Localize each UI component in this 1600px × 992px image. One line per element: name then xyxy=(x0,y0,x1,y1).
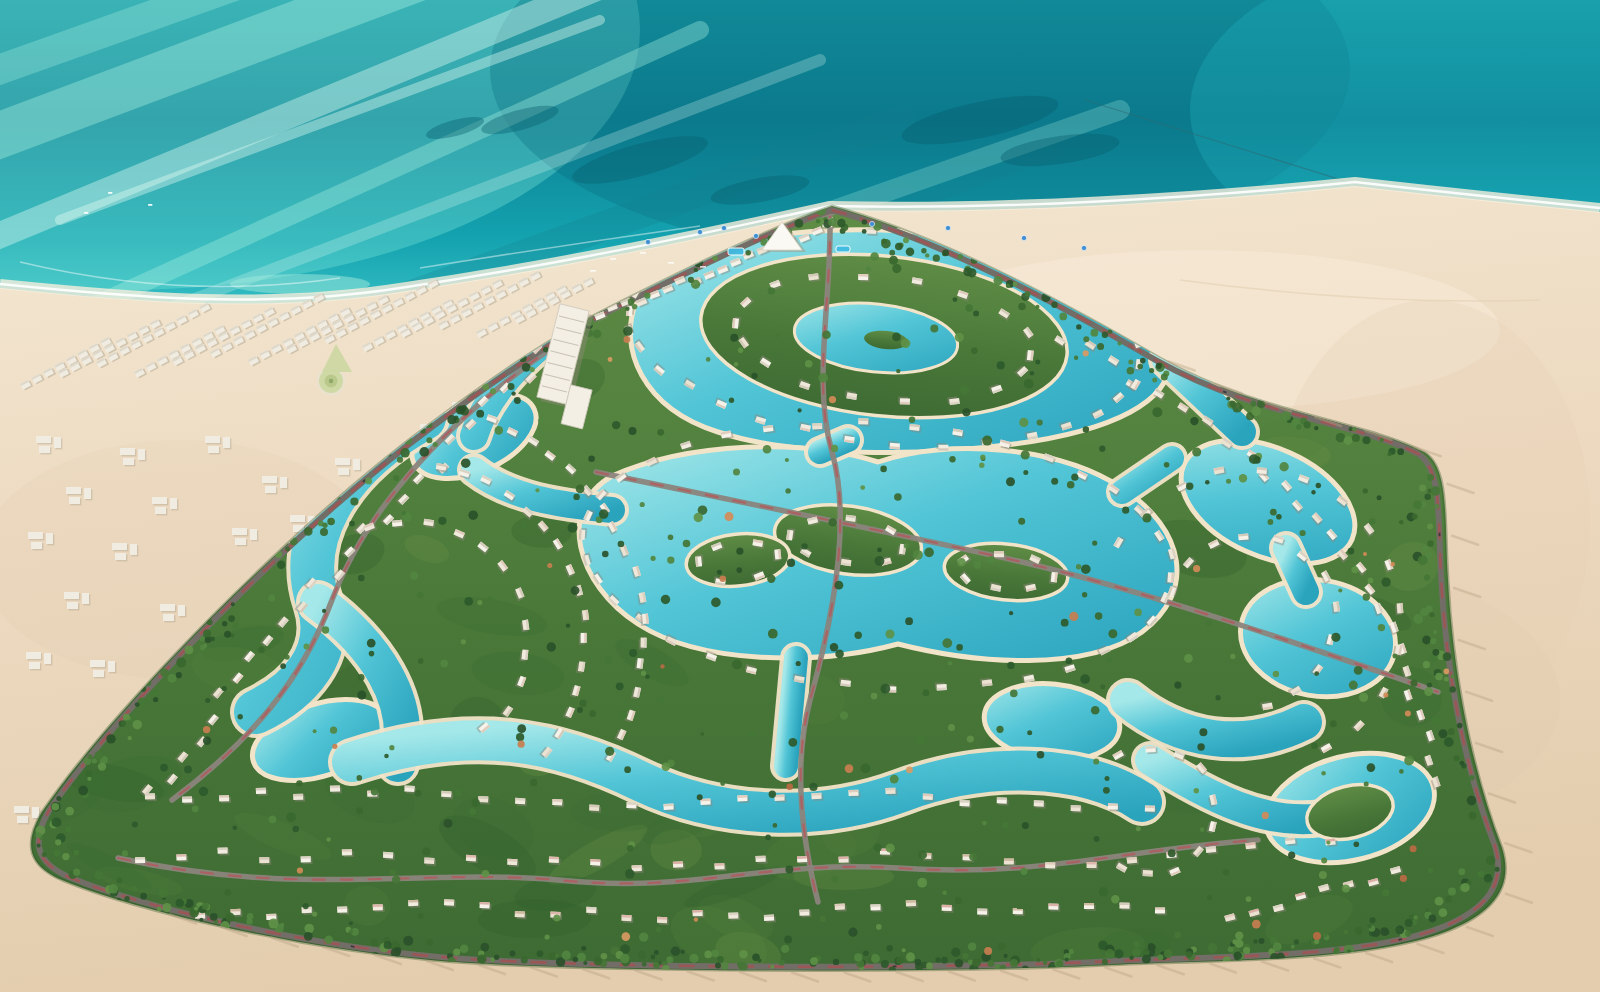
tree xyxy=(1197,743,1204,750)
accent-tree xyxy=(608,357,613,362)
villa xyxy=(579,528,588,540)
tree xyxy=(1097,343,1104,350)
tree xyxy=(54,849,61,856)
tree xyxy=(1004,954,1008,958)
tree xyxy=(1067,481,1075,489)
tree xyxy=(176,899,185,908)
tree xyxy=(1399,520,1404,525)
tree xyxy=(357,691,366,700)
tree xyxy=(840,711,848,719)
tree xyxy=(1314,426,1318,430)
tree xyxy=(285,547,290,552)
accent-tree xyxy=(332,744,337,749)
tree xyxy=(238,714,243,719)
tree xyxy=(1469,775,1474,780)
accent-tree xyxy=(786,783,793,790)
tree xyxy=(902,948,906,952)
tree xyxy=(231,602,235,606)
tree xyxy=(638,951,646,959)
tree xyxy=(95,751,104,760)
tree xyxy=(583,961,587,965)
tree xyxy=(1081,564,1091,574)
tree xyxy=(566,623,570,627)
tree xyxy=(892,333,901,342)
tree xyxy=(1226,396,1230,400)
tree xyxy=(1443,652,1452,661)
tree xyxy=(1486,856,1495,865)
tree xyxy=(1249,454,1259,464)
tree xyxy=(737,962,743,968)
tree xyxy=(818,373,828,383)
tree xyxy=(955,959,964,968)
boat xyxy=(84,212,89,214)
tree xyxy=(1378,624,1385,631)
tree xyxy=(1025,291,1031,297)
tree xyxy=(1458,868,1465,875)
tree xyxy=(135,702,140,707)
tree xyxy=(210,637,215,642)
tree xyxy=(1387,452,1391,456)
tree xyxy=(973,311,979,317)
tree xyxy=(579,700,586,707)
tree xyxy=(555,954,559,958)
tree xyxy=(627,845,634,852)
tree xyxy=(1007,662,1014,669)
sunbed xyxy=(668,262,674,264)
tree xyxy=(639,932,648,941)
tree xyxy=(358,575,365,582)
tree xyxy=(870,252,879,261)
tree xyxy=(779,959,785,965)
tree xyxy=(612,421,620,429)
tree xyxy=(785,488,790,493)
tree xyxy=(1344,930,1348,934)
tree xyxy=(1431,716,1440,725)
tree xyxy=(1013,282,1018,287)
tree xyxy=(1448,728,1455,735)
tree xyxy=(757,959,761,963)
tree xyxy=(717,570,722,575)
tree xyxy=(1426,605,1433,612)
tree xyxy=(894,493,902,501)
tree xyxy=(1399,769,1404,774)
tree xyxy=(924,548,934,558)
tree xyxy=(700,732,704,736)
tree xyxy=(988,960,995,967)
tree xyxy=(625,307,629,311)
tree xyxy=(645,674,650,679)
tree xyxy=(1352,427,1357,432)
tree xyxy=(1359,693,1368,702)
tree xyxy=(901,339,911,349)
tree xyxy=(65,826,72,833)
tree xyxy=(1311,490,1315,494)
accent-tree xyxy=(720,575,727,582)
tree xyxy=(874,556,884,566)
tree xyxy=(738,348,743,353)
tree xyxy=(371,939,378,946)
tree xyxy=(1331,633,1340,642)
tree xyxy=(820,916,826,922)
tree xyxy=(1010,690,1018,698)
tree xyxy=(861,764,871,774)
tree xyxy=(828,518,837,527)
tree xyxy=(1020,868,1027,875)
tree xyxy=(706,357,711,362)
tree xyxy=(1102,959,1108,965)
tree xyxy=(1459,761,1464,766)
tree xyxy=(1377,495,1382,500)
tree xyxy=(128,736,132,740)
tree xyxy=(568,523,578,533)
tree xyxy=(530,779,537,786)
tree xyxy=(1435,673,1443,681)
tree xyxy=(1174,932,1181,939)
tree xyxy=(620,712,628,720)
tree xyxy=(357,775,363,781)
tree xyxy=(1092,541,1097,546)
tree xyxy=(886,844,895,853)
tree xyxy=(203,737,211,745)
tree xyxy=(602,551,609,558)
tree xyxy=(767,575,775,583)
tree xyxy=(1429,915,1437,923)
tree xyxy=(1243,947,1250,954)
tree xyxy=(131,885,137,891)
tree xyxy=(458,406,465,413)
tree xyxy=(689,954,698,963)
tree xyxy=(78,786,88,796)
tree xyxy=(1095,612,1103,620)
tree xyxy=(768,287,775,294)
tree xyxy=(1424,687,1433,696)
tree xyxy=(133,720,143,730)
accent-tree xyxy=(1391,562,1395,566)
tree xyxy=(545,934,550,939)
tree xyxy=(472,799,480,807)
tree xyxy=(628,298,635,305)
tree xyxy=(464,597,473,606)
tree xyxy=(862,219,867,224)
tree xyxy=(392,876,400,884)
tree xyxy=(876,924,882,930)
tree xyxy=(1159,955,1163,959)
tree xyxy=(1215,695,1220,700)
tree xyxy=(1069,949,1074,954)
tree xyxy=(958,254,963,259)
tree xyxy=(356,807,363,814)
tree xyxy=(941,957,948,964)
tree xyxy=(1111,895,1119,903)
tree xyxy=(1076,324,1081,329)
tree xyxy=(476,410,484,418)
tree xyxy=(358,674,365,681)
tree xyxy=(1134,609,1142,617)
boat xyxy=(108,192,113,194)
tree xyxy=(269,919,279,929)
tree xyxy=(277,561,285,569)
tree xyxy=(349,930,353,934)
tree xyxy=(769,791,776,798)
tree xyxy=(184,645,193,654)
tree xyxy=(697,794,703,800)
tree xyxy=(822,331,831,340)
tree xyxy=(284,654,289,659)
tree xyxy=(960,385,970,395)
tree xyxy=(1076,564,1081,569)
villa xyxy=(732,316,741,329)
tree xyxy=(926,962,933,969)
tree xyxy=(1397,448,1404,455)
tree xyxy=(863,950,869,956)
tree xyxy=(176,672,182,678)
tree xyxy=(98,762,106,770)
tree xyxy=(1091,329,1099,337)
tree xyxy=(440,660,448,668)
tree xyxy=(951,948,960,957)
tree xyxy=(1083,336,1089,342)
tree xyxy=(56,796,61,801)
tree xyxy=(949,456,955,462)
tree xyxy=(904,543,909,548)
tree xyxy=(734,362,738,366)
tree xyxy=(1382,889,1390,897)
tree xyxy=(1108,629,1117,638)
tree xyxy=(1425,494,1431,500)
tree xyxy=(1051,302,1057,308)
tree xyxy=(426,939,433,946)
tree xyxy=(1413,614,1423,624)
tree xyxy=(835,581,844,590)
tree xyxy=(642,962,647,967)
tree xyxy=(739,950,748,959)
tree xyxy=(1226,479,1231,484)
tree xyxy=(1380,438,1384,442)
tree xyxy=(322,609,326,613)
tree xyxy=(280,663,286,669)
tree xyxy=(1128,360,1133,365)
tree xyxy=(389,745,394,750)
tree xyxy=(1148,943,1154,949)
villa xyxy=(1165,572,1174,584)
tree xyxy=(1469,812,1477,820)
tree xyxy=(477,955,486,964)
tree xyxy=(729,398,734,403)
tree xyxy=(1396,927,1402,933)
tree xyxy=(906,248,915,257)
tree xyxy=(1018,518,1025,525)
tree xyxy=(203,630,211,638)
tree xyxy=(1270,509,1277,516)
tree xyxy=(1099,446,1105,452)
tree xyxy=(577,953,586,962)
tree xyxy=(1021,450,1030,459)
tree xyxy=(522,363,531,372)
tree xyxy=(403,936,413,946)
tree xyxy=(228,615,235,622)
tree xyxy=(1363,436,1371,444)
tree xyxy=(108,884,118,894)
accent-tree xyxy=(906,766,913,773)
tree xyxy=(286,812,296,822)
tree xyxy=(1140,358,1146,364)
tree xyxy=(896,956,904,964)
tree xyxy=(1091,706,1100,715)
tree xyxy=(654,950,659,955)
tree xyxy=(905,617,913,625)
tree xyxy=(232,622,239,629)
tree xyxy=(1363,593,1370,600)
tree xyxy=(1184,654,1193,663)
tree xyxy=(982,436,992,446)
tree xyxy=(224,889,231,896)
tree xyxy=(917,878,927,888)
tree xyxy=(835,650,844,659)
tree xyxy=(795,219,804,228)
tree xyxy=(1273,671,1279,677)
tree xyxy=(151,689,159,697)
tree xyxy=(1056,960,1063,967)
tree xyxy=(776,333,780,337)
tree xyxy=(921,248,926,253)
tree xyxy=(1368,578,1374,584)
tree xyxy=(87,777,91,781)
tree xyxy=(1037,419,1043,425)
tree xyxy=(1149,368,1154,373)
tree xyxy=(280,923,284,927)
tree xyxy=(222,621,227,626)
tree xyxy=(809,783,817,791)
tree xyxy=(629,427,637,435)
tree xyxy=(785,458,789,462)
tree xyxy=(1454,755,1460,761)
accent-tree xyxy=(694,917,698,921)
tree xyxy=(1251,401,1257,407)
tree xyxy=(1061,619,1069,627)
tree xyxy=(393,475,399,481)
tree xyxy=(1418,555,1428,565)
tree xyxy=(469,808,476,815)
tree xyxy=(1321,771,1326,776)
tree xyxy=(948,661,952,665)
tree xyxy=(1431,486,1441,496)
villa xyxy=(786,528,795,541)
tree xyxy=(365,478,372,485)
tree xyxy=(304,527,313,536)
tree xyxy=(268,595,275,602)
tree xyxy=(1002,822,1009,829)
tree xyxy=(644,292,650,298)
tree xyxy=(1168,849,1176,857)
tree xyxy=(390,869,397,876)
tree xyxy=(120,720,126,726)
tree xyxy=(1316,483,1321,488)
accent-tree xyxy=(1069,612,1078,621)
beach-umbrella xyxy=(945,225,950,230)
beach-umbrella xyxy=(869,221,874,226)
tree xyxy=(736,548,743,555)
tree xyxy=(397,457,403,463)
villa xyxy=(519,649,528,662)
accent-tree xyxy=(1405,711,1411,717)
tree xyxy=(488,596,492,600)
tree xyxy=(1253,939,1258,944)
tree xyxy=(1206,620,1212,626)
tree xyxy=(106,734,115,743)
tree xyxy=(461,639,466,644)
tree xyxy=(770,965,774,969)
tree xyxy=(1103,787,1110,794)
tree xyxy=(1083,426,1089,432)
tree xyxy=(510,951,516,957)
tree xyxy=(801,543,807,549)
tree xyxy=(224,631,231,638)
tree xyxy=(1354,841,1360,847)
tree xyxy=(605,747,614,756)
tree xyxy=(1478,871,1484,877)
accent-tree xyxy=(624,336,631,343)
tree xyxy=(1142,955,1151,964)
tree xyxy=(877,548,882,553)
tree xyxy=(36,832,42,838)
villa xyxy=(635,658,644,671)
tree xyxy=(1294,939,1299,944)
sunbed xyxy=(610,258,616,260)
tree xyxy=(1363,488,1368,493)
tree xyxy=(854,953,862,961)
tree xyxy=(1164,462,1170,468)
tree xyxy=(547,642,556,651)
tree xyxy=(1251,407,1261,417)
tree xyxy=(1381,577,1390,586)
tree xyxy=(1228,946,1234,952)
tree xyxy=(837,219,845,227)
tree xyxy=(973,561,981,569)
tree xyxy=(573,957,578,962)
tree xyxy=(765,834,771,840)
villa xyxy=(1025,350,1034,363)
tree xyxy=(324,935,333,944)
tree xyxy=(1105,949,1115,959)
tree xyxy=(1093,759,1099,765)
tree xyxy=(881,960,889,968)
villa xyxy=(576,661,585,674)
tree xyxy=(1006,477,1015,486)
tree xyxy=(810,957,818,965)
tree xyxy=(1430,638,1436,644)
tree xyxy=(711,598,721,608)
tree xyxy=(887,945,893,951)
beach-umbrella xyxy=(721,225,726,230)
tree xyxy=(1435,897,1444,906)
tree xyxy=(942,890,947,895)
tree xyxy=(1114,949,1123,958)
tree xyxy=(916,735,926,745)
tree xyxy=(1174,682,1181,689)
accent-tree xyxy=(845,764,854,773)
tree xyxy=(157,907,162,912)
tree xyxy=(923,690,930,697)
tree xyxy=(1319,871,1327,879)
tree xyxy=(1428,868,1434,874)
tree xyxy=(1273,942,1282,951)
tree xyxy=(426,437,432,443)
tree xyxy=(881,684,891,694)
tree xyxy=(1321,857,1327,863)
tree xyxy=(860,485,865,490)
tree xyxy=(1185,951,1192,958)
tree xyxy=(1405,919,1413,927)
